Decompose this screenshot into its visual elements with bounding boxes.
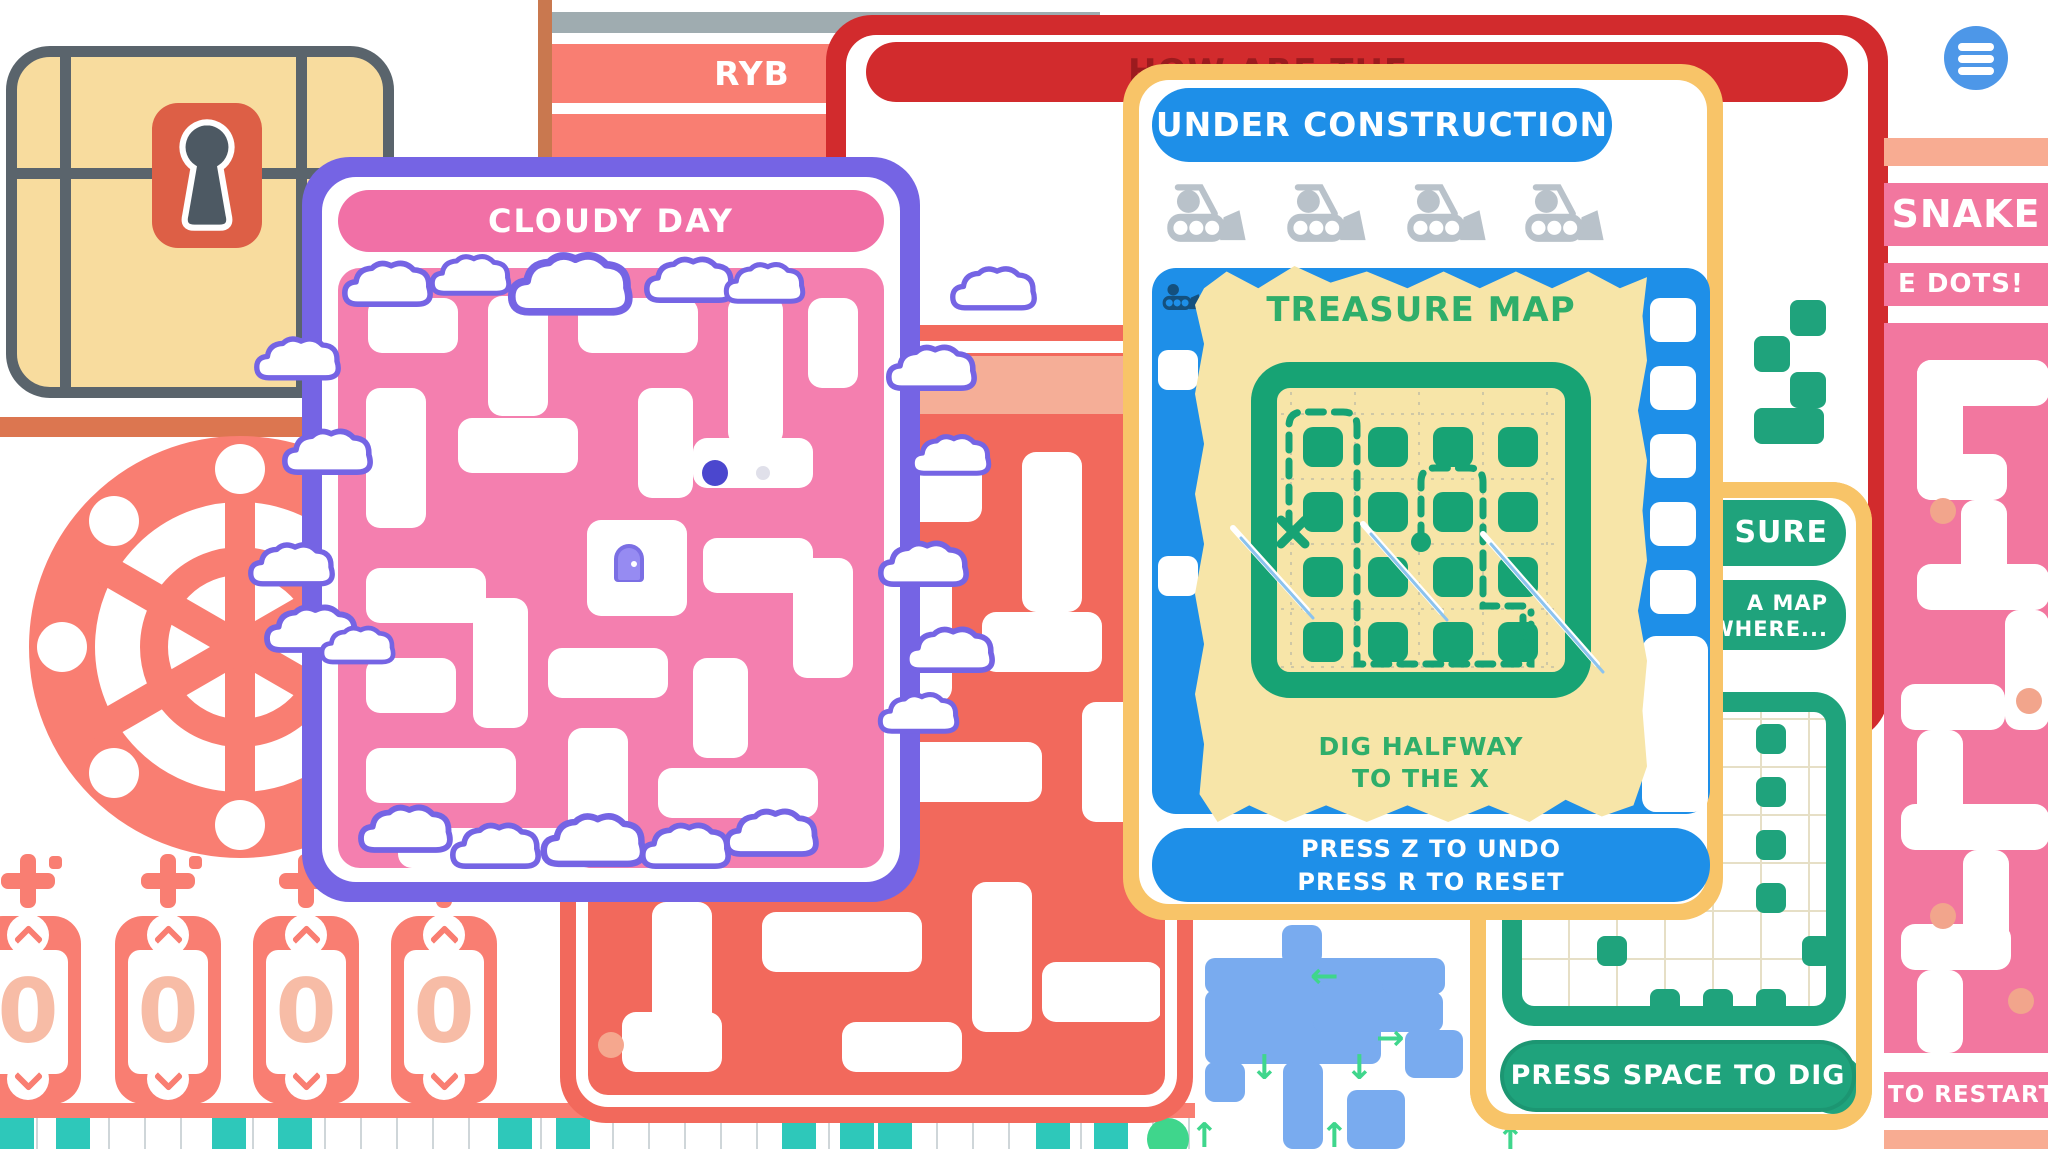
snake-title-bar: SNAKE	[1884, 183, 2048, 246]
maze-wall	[1790, 300, 1826, 336]
counter-display: 0	[266, 950, 346, 1074]
game-screen: 0 0 0 0 RYB ← → ↓ ↓ ↑ ↑ ↑ HOW ARE THE...…	[0, 0, 2048, 1149]
counter-down-button[interactable]	[423, 1058, 465, 1100]
maze-path	[728, 296, 783, 446]
cloudy-title: CLOUDY DAY	[488, 202, 734, 240]
maze-wall	[1754, 408, 1824, 444]
keyhole-icon	[176, 116, 238, 234]
counter-display: 0	[128, 950, 208, 1074]
maze-wall	[1283, 1062, 1323, 1149]
maze-wall	[1205, 1062, 1245, 1102]
cloud-icon	[722, 258, 808, 310]
maze-wall	[1405, 1030, 1463, 1078]
maze-path	[1901, 804, 2048, 850]
counter-value: 0	[0, 960, 59, 1063]
snake-footer-bar: TO RESTART	[1884, 1072, 2048, 1118]
footer-line-2: PRESS R TO RESET	[1152, 866, 1710, 898]
maze-wall	[1790, 372, 1826, 408]
door-icon	[614, 544, 644, 582]
bulldozer-icon	[1162, 172, 1250, 252]
construction-title-pill: UNDER CONSTRUCTION	[1152, 88, 1612, 162]
cloudy-title-pill: CLOUDY DAY	[338, 190, 884, 252]
player-dot	[702, 460, 728, 486]
snake-dot	[2016, 688, 2042, 714]
counter-down-button[interactable]	[285, 1058, 327, 1100]
snake-footer: TO RESTART	[1888, 1082, 2048, 1108]
counter-up-button[interactable]	[285, 914, 327, 956]
counter-value: 0	[137, 960, 198, 1063]
cloud-icon	[252, 332, 344, 387]
maze-path	[473, 598, 528, 728]
maze-wall	[1382, 958, 1444, 994]
dig-action-pill: PRESS SPACE TO DIG	[1500, 1040, 1856, 1112]
piano-key	[0, 1118, 34, 1149]
chevron-up-icon	[292, 925, 322, 955]
maze-path	[808, 298, 858, 388]
window-edge	[538, 0, 552, 160]
maze-cell	[1650, 366, 1696, 410]
chevron-down-icon	[14, 1062, 44, 1092]
band-peach	[1884, 138, 2048, 166]
construction-footer-pill: PRESS Z TO UNDO PRESS R TO RESET	[1152, 828, 1710, 902]
maze-path	[972, 882, 1032, 1032]
maze-cell	[1650, 434, 1696, 478]
cloud-icon	[876, 688, 962, 740]
maze-cell	[1650, 298, 1696, 342]
maze-path	[1901, 684, 2005, 730]
construction-title: UNDER CONSTRUCTION	[1156, 105, 1608, 144]
cloud-icon	[280, 424, 376, 482]
arrow-up-icon: ↑	[1190, 1116, 1219, 1149]
maze-dot	[598, 1032, 624, 1058]
piano-key	[56, 1118, 90, 1149]
chest-seam	[60, 54, 71, 392]
maze-path	[762, 912, 922, 972]
snake-dot	[1930, 903, 1956, 929]
maze-path	[366, 748, 516, 803]
arrow-left-icon: ←	[1310, 956, 1339, 996]
maze-cell	[1158, 350, 1198, 390]
maze-path	[902, 742, 1042, 802]
cloud-icon	[448, 818, 544, 876]
maze-path	[366, 568, 486, 623]
maze-path	[1901, 924, 2011, 970]
counter-display: 0	[404, 950, 484, 1074]
arrow-down-icon: ↓	[1345, 1048, 1374, 1088]
cloud-icon	[876, 536, 972, 594]
cloud-icon	[908, 430, 994, 482]
counter-down-button[interactable]	[147, 1058, 189, 1100]
chevron-up-icon	[154, 925, 184, 955]
cloud-icon	[505, 246, 637, 325]
plus-icon	[1, 854, 55, 908]
cloud-icon	[246, 538, 338, 593]
maze-wall	[1754, 336, 1790, 372]
cloud-icon	[428, 250, 514, 302]
cloud-icon	[948, 262, 1040, 317]
chevron-up-icon	[430, 925, 460, 955]
maze-path	[793, 558, 853, 678]
snake-title: SNAKE	[1892, 192, 2041, 236]
counter-up-button[interactable]	[7, 914, 49, 956]
cloud-icon	[722, 804, 822, 864]
piano-key	[212, 1118, 246, 1149]
maze-path	[1917, 454, 2007, 500]
maze-cell	[1650, 570, 1696, 614]
snake-dot	[1930, 498, 1956, 524]
cloud-icon	[884, 340, 980, 398]
chevron-down-icon	[430, 1062, 460, 1092]
counter-display: 0	[0, 950, 68, 1074]
treasure-map: TREASURE MAP	[1195, 266, 1647, 822]
maze-cell	[1642, 636, 1708, 812]
snake-subtitle: E DOTS!	[1898, 269, 2024, 299]
maze-path	[1022, 452, 1082, 612]
chevron-down-icon	[154, 1062, 184, 1092]
bulldozer-icon	[1402, 172, 1490, 252]
band-peach	[1884, 1130, 2048, 1149]
arrow-right-icon: →	[1376, 1018, 1405, 1058]
maze-wall	[1347, 1090, 1405, 1149]
counter-up-button[interactable]	[147, 914, 189, 956]
maze-path	[1042, 962, 1160, 1022]
cloud-icon	[538, 808, 650, 875]
map-hint-2: TO THE X	[1195, 764, 1647, 793]
cloud-icon	[340, 256, 436, 314]
piano-key	[278, 1118, 312, 1149]
map-hint-1: DIG HALFWAY	[1195, 732, 1647, 761]
snake-subtitle-bar: E DOTS!	[1884, 263, 2048, 306]
plus-icon	[141, 854, 195, 908]
maze-cell	[1158, 556, 1198, 596]
piano-key	[556, 1118, 590, 1149]
footer-line-1: PRESS Z TO UNDO	[1152, 832, 1710, 866]
maze-path	[982, 612, 1102, 672]
maze-path	[842, 1022, 962, 1072]
cloud-icon	[902, 622, 998, 680]
maze-path	[622, 1012, 722, 1072]
counter-value: 0	[275, 960, 336, 1063]
maze-path	[548, 648, 668, 698]
maze-path	[1917, 564, 2048, 610]
maze-path	[458, 418, 578, 473]
hamburger-menu-button[interactable]	[1944, 26, 2008, 90]
arrow-down-icon: ↓	[1250, 1048, 1279, 1088]
cloud-icon	[638, 818, 734, 876]
chevron-up-icon	[14, 925, 44, 955]
counter-value: 0	[413, 960, 474, 1063]
counter-up-button[interactable]	[423, 914, 465, 956]
maze-cell	[1650, 502, 1696, 546]
counter-down-button[interactable]	[7, 1058, 49, 1100]
chevron-down-icon	[292, 1062, 322, 1092]
cloud-icon	[318, 622, 398, 670]
cloud-icon	[356, 800, 456, 860]
bulldozer-icon	[1282, 172, 1370, 252]
bulldozer-icon	[1520, 172, 1608, 252]
dig-action-label: PRESS SPACE TO DIG	[1511, 1060, 1846, 1091]
arrow-up-icon: ↑	[1320, 1116, 1349, 1149]
maze-path	[1917, 970, 1963, 1053]
maze-path	[638, 388, 693, 498]
ghost-dot	[756, 466, 770, 480]
maze-path	[693, 658, 748, 758]
snake-dot	[2008, 988, 2034, 1014]
cloudy-maze	[338, 268, 884, 868]
piano-key	[498, 1118, 532, 1149]
